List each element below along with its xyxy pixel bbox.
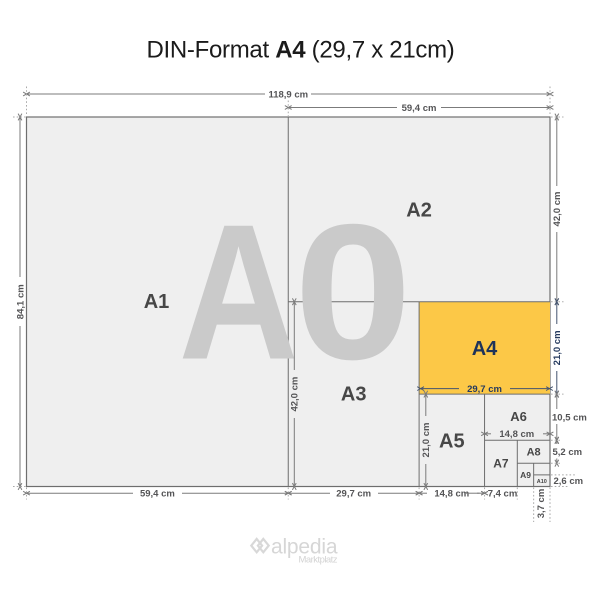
svg-text:A1: A1 bbox=[144, 291, 170, 313]
svg-text:A10: A10 bbox=[537, 479, 547, 485]
svg-text:3,7 cm: 3,7 cm bbox=[536, 489, 547, 519]
svg-text:A3: A3 bbox=[341, 383, 367, 405]
svg-text:Marktplatz: Marktplatz bbox=[299, 555, 338, 566]
svg-text:5,2 cm: 5,2 cm bbox=[553, 447, 583, 458]
svg-text:A7: A7 bbox=[493, 457, 509, 471]
svg-text:2,6 cm: 2,6 cm bbox=[554, 476, 584, 487]
svg-text:42,0 cm: 42,0 cm bbox=[552, 192, 563, 227]
svg-text:14,8 cm: 14,8 cm bbox=[499, 429, 534, 440]
svg-text:0: 0 bbox=[294, 183, 412, 399]
svg-text:59,4 cm: 59,4 cm bbox=[402, 103, 437, 114]
svg-text:7,4 cm: 7,4 cm bbox=[488, 489, 518, 500]
svg-text:10,5 cm: 10,5 cm bbox=[552, 413, 587, 424]
svg-text:A8: A8 bbox=[527, 447, 541, 459]
svg-text:84,1 cm: 84,1 cm bbox=[15, 284, 26, 319]
svg-text:118,9 cm: 118,9 cm bbox=[268, 89, 308, 100]
svg-text:A: A bbox=[179, 185, 299, 401]
svg-text:21,0 cm: 21,0 cm bbox=[552, 330, 563, 365]
svg-text:29,7 cm: 29,7 cm bbox=[336, 489, 371, 500]
svg-text:21,0 cm: 21,0 cm bbox=[421, 423, 432, 458]
svg-text:A9: A9 bbox=[520, 470, 531, 480]
svg-text:29,7 cm: 29,7 cm bbox=[467, 384, 502, 395]
svg-text:A2: A2 bbox=[406, 199, 432, 221]
svg-text:42,0 cm: 42,0 cm bbox=[290, 377, 301, 412]
svg-text:A6: A6 bbox=[510, 409, 527, 424]
svg-text:59,4 cm: 59,4 cm bbox=[140, 489, 175, 500]
svg-text:14,8 cm: 14,8 cm bbox=[434, 489, 469, 500]
svg-text:DIN-Format A4 (29,7 x 21cm): DIN-Format A4 (29,7 x 21cm) bbox=[147, 37, 455, 64]
svg-text:A5: A5 bbox=[439, 430, 465, 452]
svg-text:A4: A4 bbox=[472, 338, 498, 360]
